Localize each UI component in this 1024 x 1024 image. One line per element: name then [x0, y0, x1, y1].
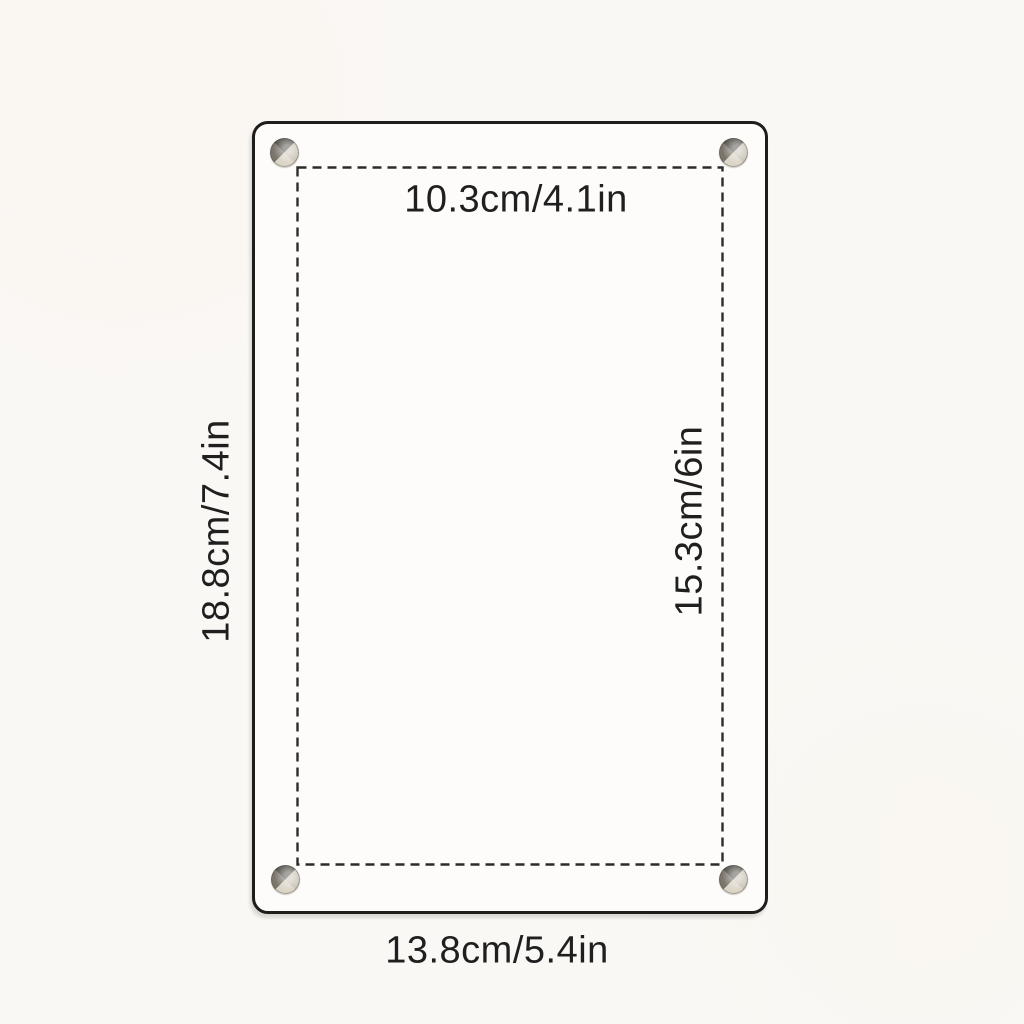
inner-width-dimension-label: 10.3cm/4.1in	[404, 179, 628, 222]
outer-width-dimension-label: 13.8cm/5.4in	[385, 930, 609, 973]
inner-height-dimension-label: 15.3cm/6in	[669, 426, 712, 617]
outer-height-dimension-label: 18.8cm/7.4in	[196, 419, 239, 643]
product-dimension-diagram: 10.3cm/4.1in 13.8cm/5.4in 18.8cm/7.4in 1…	[0, 0, 1024, 1024]
screw-icon-bottom-right	[719, 865, 748, 894]
screw-icon-bottom-left	[271, 865, 300, 894]
screw-icon-top-left	[270, 138, 299, 167]
screw-icon-top-right	[719, 138, 748, 167]
